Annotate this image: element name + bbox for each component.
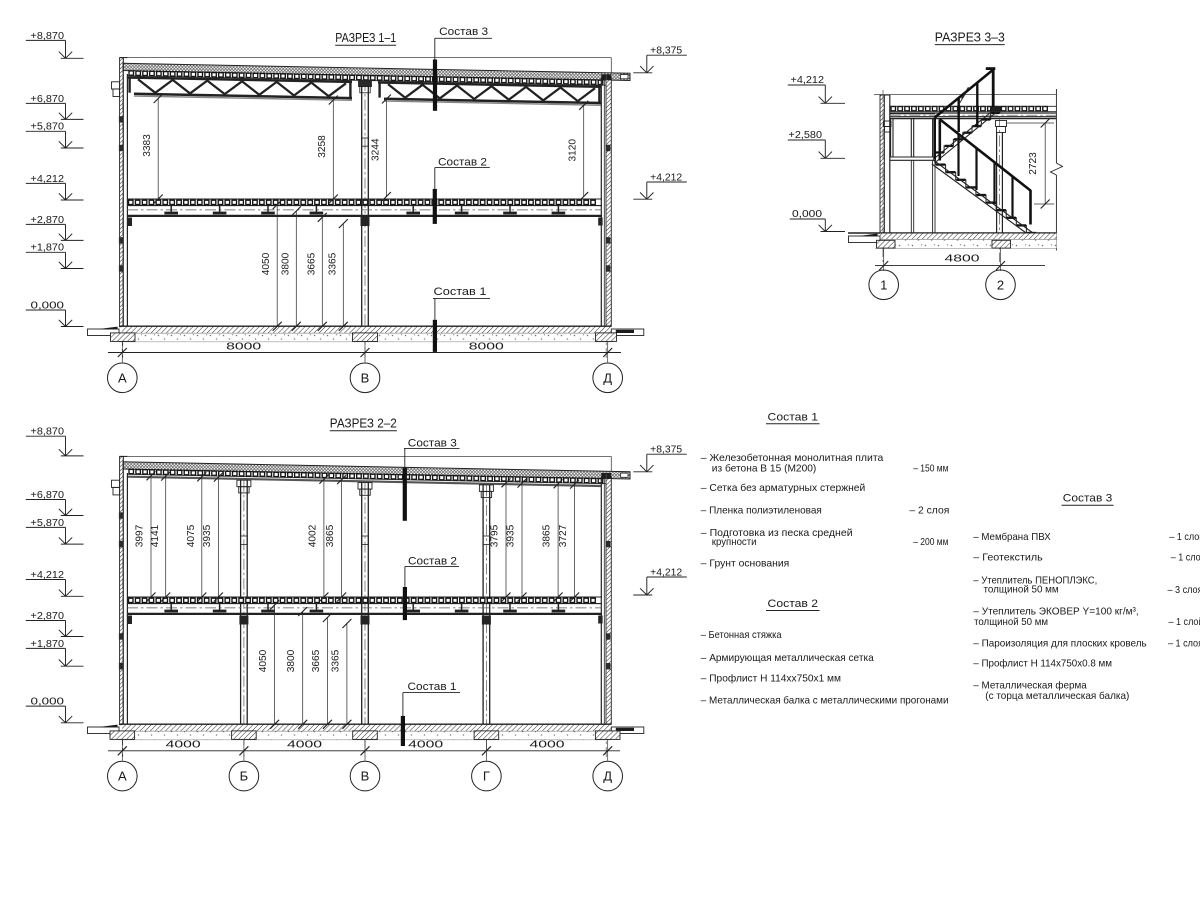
svg-text:4050: 4050 (258, 649, 269, 672)
svg-text:3865: 3865 (542, 524, 553, 547)
svg-text:4141: 4141 (150, 525, 161, 548)
svg-text:– Утеплитель ЭКОВЕР Y=100 кг/м: – Утеплитель ЭКОВЕР Y=100 кг/м³, (973, 606, 1138, 617)
svg-text:из бетона В 15 (М200): из бетона В 15 (М200) (712, 462, 817, 474)
svg-text:А: А (118, 370, 127, 385)
svg-text:– 200 мм: – 200 мм (913, 537, 948, 548)
svg-text:4002: 4002 (308, 525, 319, 548)
svg-text:В: В (361, 370, 370, 385)
svg-text:толщиной 50 мм: толщиной 50 мм (984, 585, 1059, 596)
svg-text:4000: 4000 (166, 739, 201, 750)
svg-text:Г: Г (483, 769, 490, 784)
svg-text:– 1 слой: – 1 слой (1169, 617, 1200, 628)
svg-text:Д: Д (603, 370, 612, 385)
svg-text:– 1 слой: – 1 слой (1169, 532, 1200, 543)
svg-text:2: 2 (997, 277, 1004, 292)
svg-text:3800: 3800 (280, 252, 291, 275)
svg-text:РАЗРЕЗ 2–2: РАЗРЕЗ 2–2 (330, 416, 397, 430)
svg-text:– Профлист Н 114хх750х1 мм: – Профлист Н 114хх750х1 мм (701, 673, 841, 685)
svg-text:3935: 3935 (506, 524, 517, 547)
svg-text:3800: 3800 (286, 649, 297, 672)
svg-text:Состав 1: Состав 1 (434, 286, 487, 298)
svg-text:Состав 3: Состав 3 (408, 438, 457, 450)
svg-text:– Грунт основания: – Грунт основания (701, 558, 790, 569)
svg-text:– Геотекстиль: – Геотекстиль (973, 552, 1042, 563)
svg-text:– Бетонная стяжка: – Бетонная стяжка (701, 630, 782, 641)
svg-text:3665: 3665 (306, 252, 317, 275)
svg-text:3727: 3727 (558, 525, 569, 548)
svg-text:4075: 4075 (186, 524, 197, 547)
svg-text:Состав 2: Состав 2 (438, 156, 487, 168)
svg-text:Состав 3: Состав 3 (1063, 492, 1113, 504)
svg-text:– 150 мм: – 150 мм (913, 463, 948, 474)
svg-text:3795: 3795 (490, 524, 501, 547)
svg-text:– 3 слоя: – 3 слоя (1168, 585, 1200, 596)
svg-text:– 1 слой: – 1 слой (1171, 552, 1200, 563)
svg-text:3258: 3258 (317, 135, 328, 158)
svg-text:Состав 1: Состав 1 (408, 681, 457, 693)
svg-text:2723: 2723 (1028, 152, 1039, 175)
svg-text:крупности: крупности (712, 537, 757, 548)
svg-text:4000: 4000 (287, 739, 322, 750)
svg-text:0,000: 0,000 (792, 209, 823, 220)
svg-text:Состав 1: Состав 1 (768, 411, 819, 423)
svg-text:4000: 4000 (408, 739, 443, 750)
svg-text:– Армирующая металлическая сет: – Армирующая металлическая сетка (701, 653, 874, 664)
svg-text:3383: 3383 (142, 134, 153, 157)
svg-text:– Пароизоляция для плоских кро: – Пароизоляция для плоских кровель (973, 638, 1146, 649)
svg-text:РАЗРЕЗ 1–1: РАЗРЕЗ 1–1 (335, 31, 396, 45)
svg-text:В: В (361, 769, 370, 784)
svg-text:РАЗРЕЗ 3–3: РАЗРЕЗ 3–3 (935, 30, 1005, 44)
svg-text:– Мембрана ПВХ: – Мембрана ПВХ (973, 531, 1051, 543)
svg-text:– Металлическая балка с металл: – Металлическая балка с металлическими п… (701, 694, 949, 706)
svg-text:3365: 3365 (330, 649, 341, 672)
svg-text:4000: 4000 (530, 739, 565, 750)
svg-text:4800: 4800 (945, 254, 980, 265)
svg-text:8000: 8000 (469, 342, 504, 353)
svg-text:– Сетка без арматурных стержне: – Сетка без арматурных стержней (701, 482, 866, 494)
svg-text:А: А (118, 769, 127, 784)
svg-text:(с торца металлическая балка): (с торца металлическая балка) (985, 690, 1129, 702)
svg-text:Б: Б (240, 769, 249, 784)
svg-text:Состав 3: Состав 3 (439, 26, 488, 38)
svg-text:– 1 слоя: – 1 слоя (1168, 638, 1200, 649)
svg-text:3244: 3244 (370, 138, 381, 161)
svg-text:– 2 слоя: – 2 слоя (909, 506, 949, 517)
svg-text:толщиной 50 мм: толщиной 50 мм (974, 617, 1048, 628)
svg-text:3865: 3865 (325, 524, 336, 547)
svg-text:8000: 8000 (226, 342, 261, 353)
svg-text:3665: 3665 (311, 649, 322, 672)
svg-text:Состав 2: Состав 2 (768, 598, 819, 610)
svg-text:+2,580: +2,580 (789, 130, 823, 141)
svg-text:– Металлическая ферма: – Металлическая ферма (973, 679, 1087, 691)
svg-text:4050: 4050 (261, 252, 272, 275)
svg-text:3997: 3997 (134, 525, 145, 548)
svg-text:Д: Д (603, 769, 612, 784)
svg-text:Состав 2: Состав 2 (408, 555, 457, 567)
svg-text:1: 1 (880, 277, 887, 292)
svg-text:3935: 3935 (202, 524, 213, 547)
svg-text:– Профлист Н 114х750х0.8 мм: – Профлист Н 114х750х0.8 мм (973, 657, 1112, 669)
svg-text:+4,212: +4,212 (791, 75, 825, 86)
svg-text:3365: 3365 (327, 252, 338, 275)
svg-text:3120: 3120 (568, 138, 579, 161)
svg-text:– Пленка полиэтиленовая: – Пленка полиэтиленовая (701, 506, 822, 517)
